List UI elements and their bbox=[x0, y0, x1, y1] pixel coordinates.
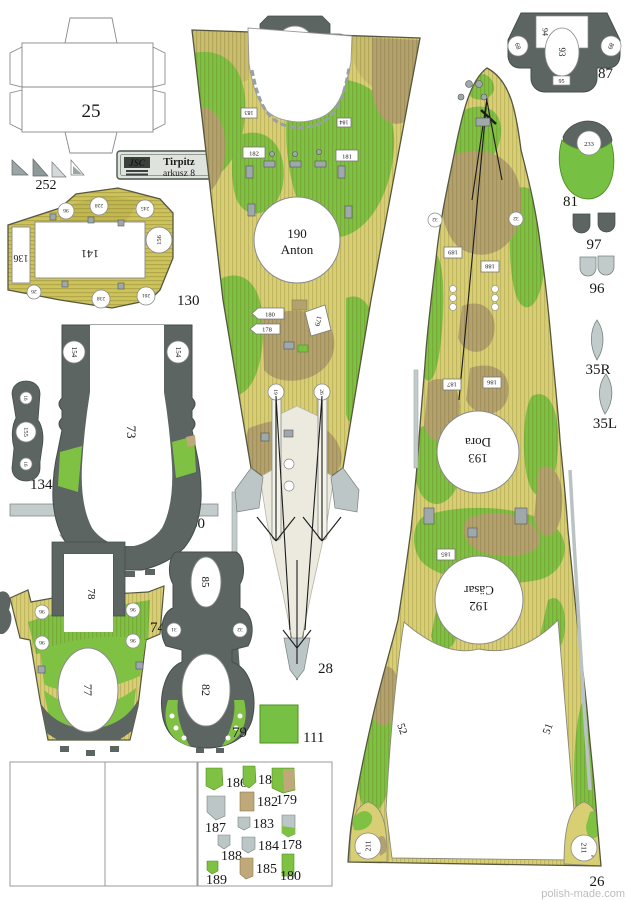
cutout-136: 136 bbox=[14, 252, 29, 263]
part-77-number: 77 bbox=[81, 684, 95, 696]
model-sheet-page: 25 252 JSC Tirpitz arkusz 8 141 136 156 bbox=[0, 0, 627, 900]
legend-label: 189 bbox=[206, 873, 227, 888]
part-73-number: 73 bbox=[124, 426, 139, 439]
deck28-tag-181: 181 bbox=[342, 154, 352, 161]
part79-circle: 32 bbox=[237, 626, 243, 632]
part-130-deck: 141 136 156 96 228 245 26 238 261 130 bbox=[4, 184, 200, 312]
part74-circle: 96 bbox=[130, 637, 136, 643]
deck130-circle: 245 bbox=[141, 205, 150, 211]
deck26-tab-211R: 211 bbox=[580, 843, 589, 854]
part74-circle: 96 bbox=[39, 639, 45, 645]
part134-circle: 16 bbox=[22, 462, 27, 468]
deck26-tag-188: 188 bbox=[485, 263, 495, 270]
part-81: 233 81 bbox=[559, 121, 614, 210]
part74-circle: 96 bbox=[39, 608, 45, 614]
part-97: 97 bbox=[573, 213, 615, 253]
deck130-circle: 228 bbox=[95, 202, 104, 208]
part-28-label: 28 bbox=[318, 661, 333, 677]
deck28-tag-180: 180 bbox=[265, 312, 275, 319]
legend-label: 184 bbox=[258, 839, 279, 854]
part-35L-label: 35L bbox=[593, 416, 617, 432]
deck26-tab-211L: 211 bbox=[364, 840, 373, 851]
legend-label: 188 bbox=[221, 849, 242, 864]
deck28-rail-circle: 19 bbox=[272, 389, 278, 395]
deck130-circle: 26 bbox=[31, 288, 37, 294]
deck26-tag-187: 187 bbox=[446, 381, 457, 388]
part81-circle: 233 bbox=[584, 141, 594, 148]
turret-anton-number: 190 bbox=[287, 226, 307, 241]
legend-label: 185 bbox=[256, 862, 277, 877]
deck28-tag-182: 182 bbox=[249, 151, 259, 158]
deck28-tag: 183 bbox=[245, 109, 254, 115]
part-111-label: 111 bbox=[303, 730, 324, 746]
part-35R: 35R bbox=[585, 320, 610, 378]
part-87: 94 93 89 89 95 87 bbox=[508, 13, 621, 92]
deck130-circle: 96 bbox=[63, 207, 69, 213]
part-25-box: 25 bbox=[10, 18, 165, 153]
part-130-label: 130 bbox=[177, 293, 200, 309]
legend-swatch-183 bbox=[238, 817, 250, 830]
deck26-tag-186: 186 bbox=[486, 379, 497, 386]
part74-circle: 96 bbox=[130, 606, 136, 612]
legend-swatch-182 bbox=[240, 792, 254, 811]
part-87-label: 87 bbox=[598, 66, 614, 82]
part-81-label: 81 bbox=[563, 194, 578, 210]
part134-circle: 155 bbox=[22, 427, 29, 437]
part-134-label: 134 bbox=[30, 477, 53, 493]
part-96-label: 96 bbox=[590, 281, 606, 297]
legend-label: 180 bbox=[280, 869, 301, 884]
legend-label: 182 bbox=[257, 795, 278, 810]
watermark: polish-made.com bbox=[541, 888, 625, 900]
turret-dora-number: 193 bbox=[468, 451, 488, 466]
part134-circle: 16 bbox=[22, 396, 27, 402]
deck26-fit-circle: 32 bbox=[513, 215, 519, 221]
deck130-circle: 238 bbox=[97, 295, 106, 301]
part87-95: 95 bbox=[559, 79, 565, 85]
part-35L: 35L bbox=[593, 374, 617, 432]
part-79-assembly: 85 31 32 82 79 bbox=[162, 552, 254, 753]
deck26-tab-letter: ℓ bbox=[357, 852, 363, 854]
legend-swatch-186 bbox=[206, 768, 223, 790]
plate-sheet: arkusz 8 bbox=[163, 169, 195, 179]
part79-circle: 31 bbox=[171, 626, 177, 632]
part-97-label: 97 bbox=[587, 237, 603, 253]
cutout-156: 156 bbox=[156, 234, 163, 245]
sheet-canvas: 25 252 JSC Tirpitz arkusz 8 141 136 156 bbox=[0, 0, 627, 900]
plate-title: Tirpitz bbox=[163, 157, 195, 168]
legend-label: 179 bbox=[276, 793, 297, 808]
deck130-circle: 261 bbox=[142, 292, 151, 298]
legend-label: 187 bbox=[205, 821, 226, 836]
part-25-label: 25 bbox=[82, 101, 101, 122]
part-252-triangles: 252 bbox=[12, 159, 84, 193]
deck28-tag: 184 bbox=[340, 119, 349, 125]
part87-94: 94 bbox=[541, 28, 550, 36]
camo-patch-legend: 186 181 179 187 182 183 188 184 178 189 … bbox=[198, 762, 332, 888]
part73-circle: 154 bbox=[174, 347, 182, 358]
part-252-label: 252 bbox=[36, 178, 57, 193]
part87-93: 93 bbox=[557, 48, 567, 58]
deck26-tag-185: 185 bbox=[441, 551, 451, 558]
part-74-assembly: 96 96 96 96 78 77 74 bbox=[8, 542, 168, 756]
deck28-rail-circle: 26 bbox=[318, 389, 324, 395]
publisher-plate: JSC Tirpitz arkusz 8 bbox=[117, 151, 214, 179]
legend-swatch-185 bbox=[240, 858, 253, 879]
part-111-swatch: 111 bbox=[260, 705, 324, 746]
turret-casar-name: Cäsar bbox=[464, 583, 494, 598]
deck26-tag-189: 189 bbox=[448, 249, 458, 256]
deck26-fit-circle: 32 bbox=[432, 216, 438, 222]
part-79-label: 79 bbox=[232, 725, 247, 741]
part-78-number: 78 bbox=[85, 589, 97, 601]
part-85-number: 85 bbox=[199, 577, 211, 589]
turret-dora-name: Dora bbox=[465, 435, 491, 450]
turret-anton-name: Anton bbox=[281, 242, 314, 257]
turret-casar-number: 192 bbox=[469, 599, 489, 614]
part-96: 96 bbox=[580, 256, 614, 297]
legend-label: 183 bbox=[253, 817, 274, 832]
blank-box bbox=[10, 762, 197, 886]
publisher-logo: JSC bbox=[128, 158, 146, 168]
legend-label: 178 bbox=[281, 838, 302, 853]
part-82-number: 82 bbox=[199, 684, 213, 696]
cutout-141: 141 bbox=[81, 247, 99, 261]
part-134: 16 155 16 134 bbox=[12, 381, 53, 493]
part73-circle: 154 bbox=[70, 347, 78, 358]
part-73: 154 154 73 bbox=[53, 325, 201, 577]
deck28-tag-178: 178 bbox=[262, 327, 272, 334]
